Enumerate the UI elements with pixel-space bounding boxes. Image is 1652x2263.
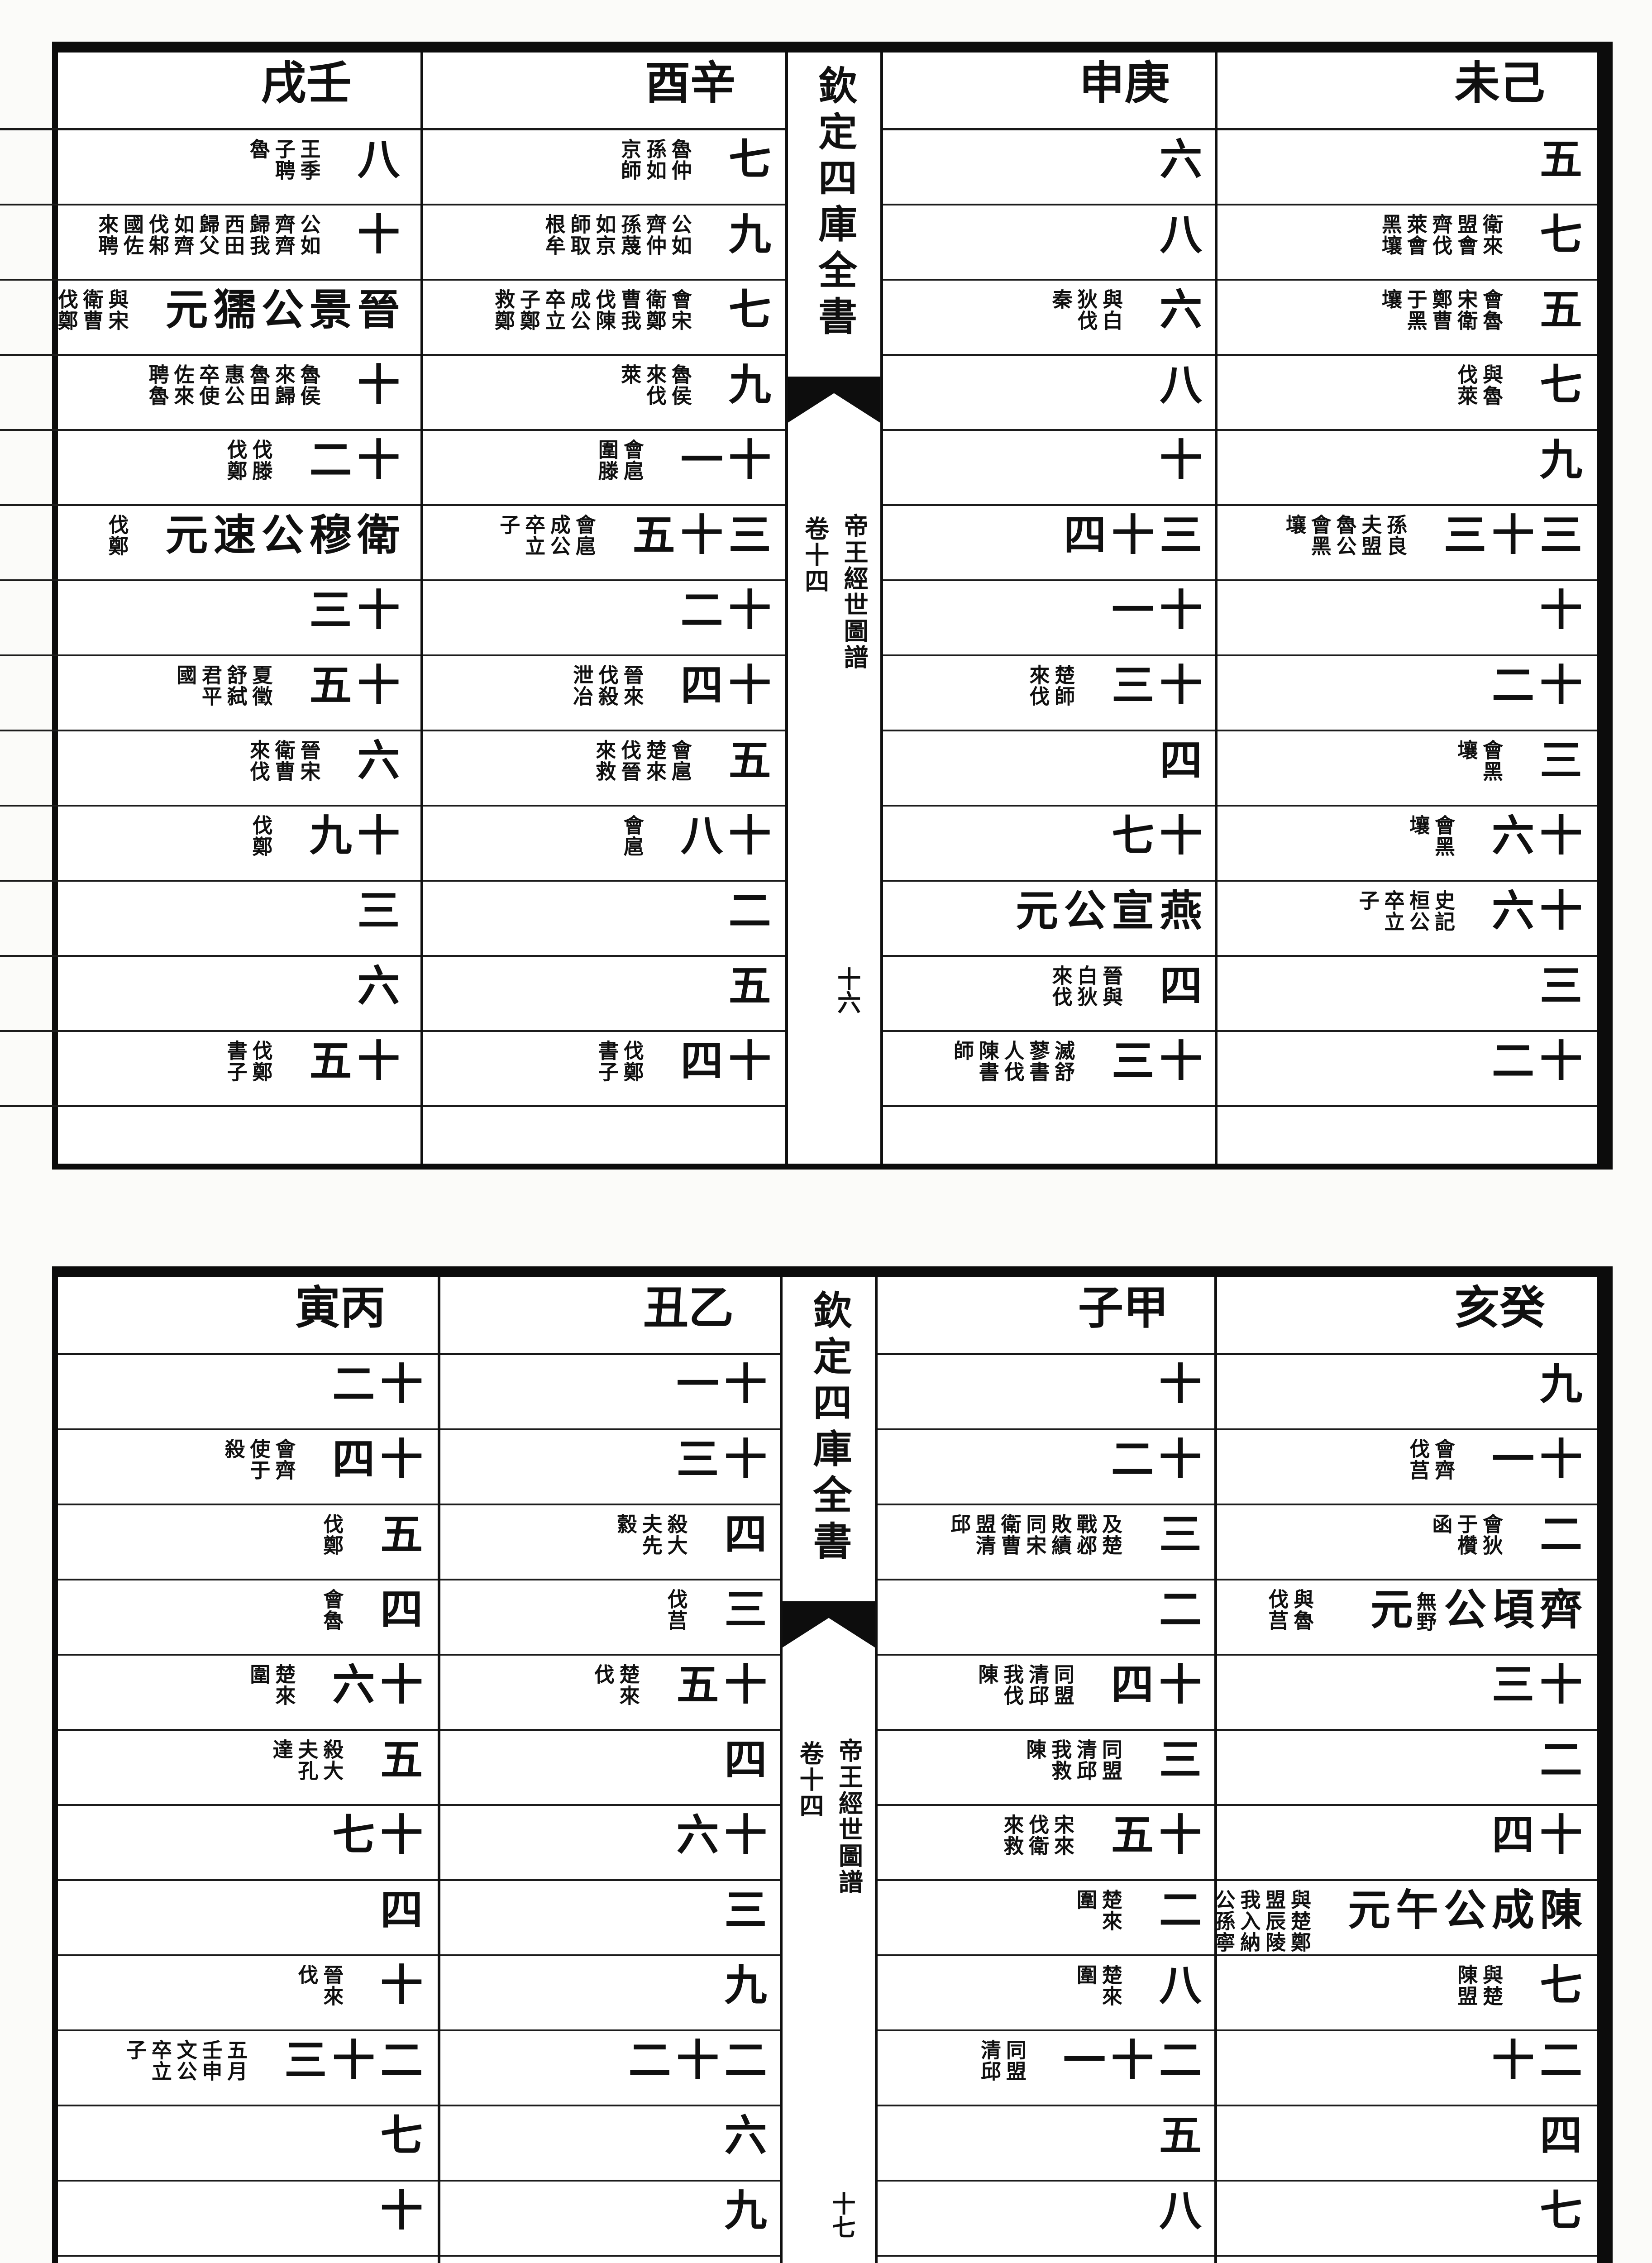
number-glyph: 二 (721, 2038, 763, 2080)
event-note-column: 晉宋 (298, 740, 319, 782)
number-glyph: 十 (1155, 663, 1198, 705)
year-cell: 十 (883, 431, 1215, 506)
year-cell: 六 (440, 2106, 780, 2182)
year-cell: 十一 (440, 1355, 780, 1430)
event-note-column: 伐鄭 (250, 815, 271, 857)
year-cell: 十六與陳鄭盟于辰陵入陳殺夏徵舒 (1217, 2257, 1597, 2263)
event-note: 會狄于欑函 (1387, 1513, 1501, 1556)
number-glyph: 十 (353, 1038, 396, 1081)
event-note-column: 圍 (1074, 1889, 1095, 1932)
event-note-column: 夫盟 (1359, 514, 1380, 557)
event-note: 會宋衛鄭曹我伐陳成公卒立子鄭救鄭 (423, 289, 690, 331)
event-note-column: 子鄭 (517, 289, 539, 331)
cyclical-year-label: 己未 (1450, 59, 1540, 128)
banner-column: 欽定四庫全書帝王經世圖譜卷十四十六 (785, 53, 883, 1164)
year-cell: 四晉與白狄來伐 (883, 957, 1215, 1032)
regnal-year-number: 三 (1155, 1512, 1198, 1554)
regnal-year-number: 八 (353, 137, 396, 179)
event-note-column: 楚來 (617, 1664, 638, 1706)
event-note-column: 會齊 (272, 1438, 294, 1481)
year-column: 己未五七衛來盟會齊伐萊會黑壤五會魯宋衛鄭曹于黑壤七與魯伐萊九三十三孫良夫盟魯公會… (1215, 53, 1597, 1164)
event-note-column: 伐衛 (1026, 1814, 1047, 1857)
year-cell: 五殺大夫孔達 (58, 1731, 438, 1806)
year-cell: 七 (58, 2106, 438, 2182)
number-glyph: 七 (1536, 1962, 1578, 2005)
year-cell: 二會狄于欑函 (1217, 1505, 1597, 1580)
cyclical-year-label: 庚申 (1074, 59, 1165, 128)
number-glyph: 十 (1155, 1361, 1198, 1404)
number-glyph: 五 (725, 738, 767, 780)
number-glyph: 二 (1536, 2038, 1578, 2080)
year-cell: 十魯侯來歸魯田惠公卒使佐來聘魯 (0, 356, 420, 431)
regnal-year-number: 二十一 (1059, 2038, 1198, 2080)
year-cell: 九 (1218, 431, 1597, 506)
number-glyph: 十 (725, 1038, 767, 1081)
year-cell: 十一 (883, 581, 1215, 656)
cyclical-year-label: 丙寅 (290, 1284, 381, 1353)
year-cell: 十 (878, 1355, 1214, 1430)
year-cell: 三及楚戰邲敗績同宋衛曹盟清邱 (878, 1505, 1214, 1580)
event-note: 會黑壤 (1434, 740, 1501, 782)
number-glyph: 三 (1488, 1662, 1530, 1704)
regnal-year-number: 十三 (1108, 1038, 1198, 1081)
number-glyph: 穆 (305, 512, 348, 555)
year-cell: 五會魯宋衛鄭曹于黑壤 (1218, 281, 1597, 356)
event-note-column: 使于 (248, 1438, 269, 1481)
event-note-column: 來伐 (1050, 965, 1071, 1007)
event-note-column: 會扈 (669, 740, 690, 782)
column-header: 壬戌 (0, 53, 420, 130)
cyclical-year-label: 乙丑 (639, 1284, 729, 1353)
number-glyph: 十 (1488, 2038, 1530, 2080)
event-note-column: 舒弑 (224, 664, 246, 707)
fishtail-mark (783, 1601, 875, 1647)
number-glyph: 晉 (353, 287, 396, 329)
event-note-column: 伐晉 (618, 740, 640, 782)
year-cell: 十二 (1218, 1032, 1597, 1107)
number-glyph: 一 (1059, 2038, 1102, 2080)
event-note-column: 子聘 (272, 138, 294, 181)
event-note-column: 伐鄭 (224, 439, 246, 482)
event-note-column: 五月 (224, 2039, 246, 2082)
event-note: 晉來伐 (274, 1964, 342, 2007)
event-note: 會黑壤 (1386, 815, 1453, 857)
number-glyph: 十 (1155, 1437, 1198, 1479)
year-column: 甲子十十二三及楚戰邲敗績同宋衛曹盟清邱二十四同盟清邱我伐陳三同盟清邱我救陳十五宋… (878, 1277, 1214, 2263)
column-header: 庚申 (883, 53, 1215, 130)
regnal-year-number: 十一 (1108, 587, 1198, 630)
regnal-year-number: 四 (1536, 2113, 1578, 2155)
regnal-year-number: 四 (1155, 963, 1198, 1006)
number-glyph: 四 (376, 1887, 419, 1930)
regnal-year-number: 十四 (1488, 1812, 1578, 1855)
year-column: 丙寅十二十四會齊使于殺五伐鄭四會魯十六楚來圍五殺大夫孔達十七四十晉來伐二十三五月… (58, 1277, 438, 2263)
year-cell: 五會扈楚來伐晉來救 (423, 731, 785, 807)
number-glyph: 元 (1344, 1887, 1386, 1930)
regnal-year-number: 十七 (1108, 813, 1198, 855)
number-glyph: 九 (725, 362, 767, 405)
year-cell: 十三 (440, 1430, 780, 1505)
year-cell: 十六楚來圍 (58, 1656, 438, 1731)
event-note-column: 清邱 (1074, 1739, 1095, 1781)
year-cell: 六 (883, 130, 1215, 205)
event-note-column: 會狄 (1480, 1513, 1501, 1556)
regnal-year-number: 八 (1155, 362, 1198, 405)
number-glyph: 七 (725, 287, 767, 329)
year-cell: 五 (878, 2106, 1214, 2182)
event-note-column: 壬申 (200, 2039, 221, 2082)
regnal-year-number: 燕宣公元 (1012, 888, 1198, 931)
regnal-year-number: 十三 (673, 1437, 763, 1479)
number-glyph: 十 (353, 813, 396, 855)
number-glyph: 四 (376, 1587, 419, 1629)
number-glyph: 十 (1155, 437, 1198, 480)
event-note-column: 圍 (248, 1664, 269, 1706)
year-cell: 三伐莒 (440, 1580, 780, 1656)
number-glyph: 七 (1536, 212, 1578, 254)
number-glyph: 二 (677, 587, 719, 630)
regnal-year-number: 十 (353, 212, 396, 254)
regnal-year-number: 十二 (328, 1361, 419, 1404)
regnal-year-number: 九 (721, 2188, 763, 2230)
number-glyph: 三 (725, 512, 767, 555)
event-note-column: 泄冶 (570, 664, 592, 707)
number-glyph: 七 (376, 2113, 419, 2155)
event-note: 伐鄭 (85, 514, 127, 557)
event-note-column: 師 (951, 1040, 972, 1083)
event-note-column: 伐 (592, 1664, 613, 1706)
event-note: 會扈楚來伐晉來救 (508, 740, 690, 782)
year-cell: 十九圍宋書子 (58, 2257, 438, 2263)
year-cell: 十 (1218, 581, 1597, 656)
event-note: 楚來伐 (570, 1664, 638, 1706)
event-note-column: 會魯 (320, 1589, 342, 1631)
year-cell: 九公如齊仲孫蔑如京師取根牟 (423, 205, 785, 281)
number-glyph: 八 (1155, 362, 1198, 405)
column-header: 癸亥 (1217, 1277, 1597, 1355)
year-cell: 六 (0, 957, 420, 1032)
number-glyph: 十 (1536, 1038, 1578, 1081)
banner-column: 欽定四庫全書帝王經世圖譜卷十四十七 (780, 1277, 878, 2263)
regnal-year-number: 七 (1536, 212, 1578, 254)
number-glyph: 頃 (1488, 1587, 1530, 1631)
event-note: 魯仲孫如京師 (555, 138, 690, 181)
fishtail-mark (788, 377, 880, 423)
number-glyph: 十 (673, 2038, 715, 2080)
event-note-column: 會黑 (1432, 815, 1453, 857)
event-note-column: 伐邾 (146, 214, 167, 256)
regnal-year-number: 九 (721, 1962, 763, 2005)
number-glyph: 九 (1536, 1361, 1578, 1404)
event-note-column: 伐鄭 (55, 289, 76, 331)
event-note-column: 圍滕 (596, 439, 617, 482)
regnal-year-number: 三十三 (1440, 512, 1578, 555)
regnal-year-number: 十四 (1107, 1662, 1198, 1704)
event-note-column: 縠 (614, 1513, 635, 1556)
regnal-year-number: 七 (1536, 1962, 1578, 2005)
year-cell: 十三 (1217, 1656, 1597, 1731)
number-glyph: 六 (328, 1662, 371, 1704)
regnal-year-number: 十一 (673, 1361, 763, 1404)
event-note-column: 楚來 (1099, 1964, 1121, 2007)
regnal-year-number: 七 (1536, 362, 1578, 405)
number-glyph: 三 (280, 2038, 323, 2080)
year-cell: 十六史記桓公卒立子 (1218, 882, 1597, 957)
event-note-column: 桓公 (1407, 890, 1428, 932)
event-note-column: 伐陳 (593, 289, 614, 331)
year-cell: 十公如齊齊歸我西田歸父如齊伐邾國佐來聘 (0, 205, 420, 281)
event-note-column: 同宋 (1024, 1513, 1045, 1556)
event-note-column: 黑壤 (1379, 214, 1400, 256)
event-note: 會齊伐莒 (1365, 1438, 1453, 1481)
year-cell: 三 (0, 882, 420, 957)
regnal-year-number: 三 (721, 1587, 763, 1629)
number-glyph: 四 (328, 1437, 371, 1479)
number-glyph: 元 (1012, 888, 1054, 931)
event-note-column: 公如 (669, 214, 690, 256)
event-note-column: 伐鄭 (320, 1513, 342, 1556)
number-glyph: 五 (305, 663, 348, 705)
number-glyph: 六 (721, 2113, 763, 2155)
year-cell: 四會魯 (58, 1580, 438, 1656)
event-note-column: 圍 (1074, 1964, 1095, 2007)
event-note: 殺大夫先縠 (572, 1513, 686, 1556)
event-note-column: 楚師 (1052, 664, 1073, 707)
event-note-column: 書子 (596, 1040, 617, 1083)
year-column: 庚申六八六與白狄伐秦八十三十四十一十三楚師來伐四十七燕宣公元四晉與白狄來伐十三滅… (883, 53, 1215, 1164)
event-note-column: 惠公 (222, 364, 243, 406)
event-note: 會魯 (300, 1589, 342, 1631)
siku-banner-title: 欽定四庫全書 (815, 65, 854, 364)
year-cell: 十七 (58, 1806, 438, 1881)
year-cell: 三同盟清邱我救陳 (878, 1731, 1214, 1806)
number-glyph: 獳 (209, 287, 252, 329)
number-glyph: 七 (1536, 2188, 1578, 2230)
regnal-year-number: 七 (376, 2113, 419, 2155)
number-glyph: 三 (721, 1887, 763, 1930)
number-glyph: 四 (721, 1512, 763, 1554)
regnal-year-number: 三 (1155, 1737, 1198, 1780)
number-glyph: 三 (1536, 963, 1578, 1006)
event-note-column: 衛來 (1480, 214, 1501, 256)
event-note: 五月壬申文公卒立子 (58, 2039, 246, 2082)
event-note: 與宋衛曹伐鄭 (0, 289, 127, 331)
year-cell: 十四伐鄭書子 (423, 1032, 785, 1107)
number-glyph: 十 (1536, 1437, 1578, 1479)
event-note-column: 伐莒 (665, 1589, 686, 1631)
number-glyph: 四 (677, 663, 719, 705)
year-cell: 三 (440, 1881, 780, 1956)
regnal-year-number: 五 (1536, 287, 1578, 329)
number-glyph: 五 (376, 1512, 419, 1554)
event-note-column: 邱 (948, 1513, 969, 1556)
event-note-column: 殺大 (665, 1513, 686, 1556)
regnal-year-number: 二 (1155, 1587, 1198, 1629)
event-note-column: 人伐 (1002, 1040, 1023, 1083)
number-glyph: 十 (725, 437, 767, 480)
event-note-column: 衛曹 (272, 740, 294, 782)
event-note-column: 會魯 (1480, 289, 1501, 331)
regnal-year-number: 二 (1536, 1512, 1578, 1554)
event-note-column: 與白 (1100, 289, 1121, 331)
year-cell: 十五楚來伐 (440, 1656, 780, 1731)
year-cell: 六晉宋衛曹來伐 (0, 731, 420, 807)
event-note-column: 歸我 (247, 214, 268, 256)
event-note: 楚來圍 (1053, 1964, 1120, 2007)
event-note-column: 會扈 (621, 439, 642, 482)
year-cell (1218, 1107, 1597, 1164)
number-glyph: 九 (305, 813, 348, 855)
regnal-year-number: 七 (725, 287, 767, 329)
number-glyph: 四 (1060, 512, 1102, 555)
event-note-column: 師取 (568, 214, 589, 256)
event-note: 同盟清邱 (936, 2039, 1025, 2082)
number-glyph: 三 (1440, 512, 1482, 555)
regnal-year-number: 三 (353, 888, 396, 931)
regnal-year-number: 二十 (1488, 2038, 1578, 2080)
year-cell: 七會宋衛鄭曹我伐陳成公卒立子鄭救鄭 (423, 281, 785, 356)
number-glyph: 無野 (1414, 1591, 1434, 1631)
event-note: 伐莒 (644, 1589, 686, 1631)
number-glyph: 八 (353, 137, 396, 179)
regnal-year-number: 三 (721, 1887, 763, 1930)
number-glyph: 十 (1155, 1662, 1198, 1704)
event-note-column: 會齊 (1432, 1438, 1453, 1481)
regnal-year-number: 九 (725, 362, 767, 405)
year-cell: 七魯仲孫如京師 (423, 130, 785, 205)
year-cell: 二十三五月壬申文公卒立子 (58, 2031, 438, 2106)
number-glyph: 三 (1155, 1512, 1198, 1554)
event-note-column: 魯侯 (669, 364, 690, 406)
regnal-year-number: 五 (725, 963, 767, 1006)
number-glyph: 三 (1536, 512, 1578, 555)
number-glyph: 十 (721, 1812, 763, 1855)
year-cell: 二 (423, 882, 785, 957)
event-note-column: 清邱 (978, 2039, 999, 2082)
event-note: 及楚戰邲敗績同宋衛曹盟清邱 (878, 1513, 1121, 1556)
year-cell: 十三滅舒蓼書人伐陳書師 (883, 1032, 1215, 1107)
number-glyph: 十 (328, 2038, 371, 2080)
number-glyph: 四 (1107, 1662, 1150, 1704)
event-note: 與魯伐莒 (1223, 1589, 1312, 1631)
event-note-column: 卒立 (543, 289, 564, 331)
regnal-year-number: 十四 (677, 663, 767, 705)
number-glyph: 十 (376, 1812, 419, 1855)
year-cell: 二十 (1217, 2031, 1597, 2106)
event-note-column: 孫蔑 (618, 214, 640, 256)
year-cell: 四 (1217, 2106, 1597, 2182)
number-glyph: 九 (725, 212, 767, 254)
regnal-year-number: 十 (376, 1962, 419, 2005)
number-glyph: 九 (1536, 437, 1578, 480)
number-glyph: 十 (721, 1662, 763, 1704)
event-note-column: 會黑 (1308, 514, 1330, 557)
number-glyph: 十 (1108, 512, 1150, 555)
regnal-year-number: 四 (721, 1737, 763, 1780)
regnal-year-number: 二 (1155, 1887, 1198, 1930)
event-note-column: 陳 (1024, 1739, 1045, 1781)
book-title: 帝王經世圖譜 (835, 1738, 862, 1895)
regnal-year-number: 十七 (328, 1812, 419, 1855)
year-cell: 十 (58, 2182, 438, 2257)
event-note: 殺大夫孔達 (228, 1739, 342, 1781)
event-note: 會扈成公卒立子 (434, 514, 594, 557)
event-note: 與楚鄭盟辰陵我入納公孫寧儀行父 (1217, 1889, 1309, 1953)
number-glyph: 三 (1108, 663, 1150, 705)
year-cell: 十七 (883, 807, 1215, 882)
year-cell: 十四 (1217, 1806, 1597, 1881)
event-note-column: 齊伐 (1430, 214, 1451, 256)
event-note-column: 如齊 (172, 214, 193, 256)
event-note-column: 來伐 (1027, 664, 1048, 707)
number-glyph: 十 (376, 1361, 419, 1404)
regnal-year-number: 五 (725, 738, 767, 780)
regnal-year-number: 十 (1155, 1361, 1198, 1404)
event-note-column: 會扈 (573, 514, 594, 557)
year-cell: 九 (440, 2182, 780, 2257)
event-note-column: 王季 (298, 138, 319, 181)
number-glyph: 二 (1155, 1587, 1198, 1629)
number-glyph: 五 (1536, 287, 1578, 329)
number-glyph: 八 (677, 813, 719, 855)
year-cell: 十二 (1218, 656, 1597, 731)
event-note-column: 會黑 (1480, 740, 1501, 782)
event-note: 與魯伐萊 (1413, 364, 1501, 406)
regnal-year-number: 十五 (305, 663, 396, 705)
number-glyph: 二 (1155, 2038, 1198, 2080)
year-cell: 十二伐滕伐鄭 (0, 431, 420, 506)
event-note-column: 成公 (568, 289, 589, 331)
regnal-year-number: 五 (1155, 2113, 1198, 2155)
number-glyph: 十 (353, 663, 396, 705)
year-cell: 十八會扈 (423, 807, 785, 882)
event-note-column: 我伐 (1001, 1664, 1022, 1706)
number-glyph: 十 (725, 587, 767, 630)
event-note-column: 楚來 (1099, 1889, 1121, 1932)
number-glyph: 八 (1155, 1962, 1198, 2005)
year-cell: 三十三孫良夫盟魯公會黑壤 (1218, 506, 1597, 581)
cyclical-year-label: 辛酉 (640, 59, 731, 128)
juan-label: 卷十四 (796, 1741, 823, 1895)
event-note-column: 宋來 (1051, 1814, 1073, 1857)
year-cell: 三十五會扈成公卒立子 (423, 506, 785, 581)
event-note: 會魯宋衛鄭曹于黑壤 (1294, 289, 1501, 331)
number-glyph: 六 (673, 1812, 715, 1855)
regnal-year-number: 二十二 (625, 2038, 763, 2080)
event-note-column: 齊齊 (272, 214, 294, 256)
regnal-year-number: 三 (1536, 738, 1578, 780)
event-note-column: 陳書 (976, 1040, 998, 1083)
year-cell: 九 (440, 1956, 780, 2031)
regnal-year-number: 十二 (677, 587, 767, 630)
event-note-column: 根牟 (543, 214, 564, 256)
scanned-page: { "page": {"footer_label": "922-638", "p… (0, 0, 1652, 2263)
number-glyph: 十 (1536, 587, 1578, 630)
event-note-column: 盟辰陵 (1263, 1889, 1284, 1953)
event-note-column: 孫良 (1384, 514, 1405, 557)
number-glyph: 四 (1155, 738, 1198, 780)
regnal-year-number: 十五 (673, 1662, 763, 1704)
year-cell: 十四會齊使于殺 (58, 1430, 438, 1505)
cyclical-year-label: 甲子 (1073, 1284, 1164, 1353)
regnal-year-number: 十 (353, 362, 396, 405)
year-cell: 八王季子聘魯 (0, 130, 420, 205)
year-cell: 十五宋來伐衛來救 (878, 1806, 1214, 1881)
event-note-column: 與宋 (106, 289, 127, 331)
number-glyph: 九 (721, 1962, 763, 2005)
regnal-year-number: 八 (1155, 212, 1198, 254)
number-glyph: 三 (721, 1587, 763, 1629)
